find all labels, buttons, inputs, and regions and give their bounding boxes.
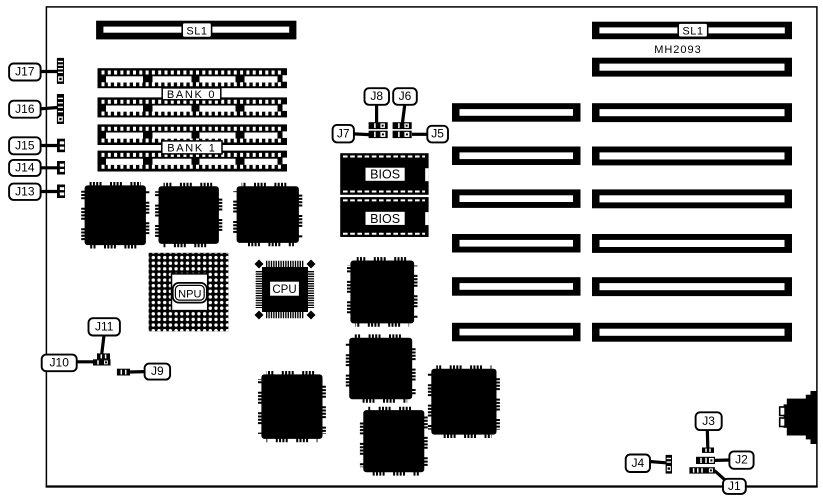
svg-text:J17: J17 — [15, 65, 35, 79]
svg-text:BANK 1: BANK 1 — [167, 143, 216, 155]
svg-text:J2: J2 — [735, 453, 748, 467]
svg-text:CPU: CPU — [272, 284, 296, 296]
svg-text:MH2093: MH2093 — [654, 44, 702, 56]
svg-text:J8: J8 — [370, 89, 383, 103]
svg-text:BIOS: BIOS — [370, 168, 400, 182]
svg-text:J7: J7 — [337, 126, 350, 140]
svg-text:BIOS: BIOS — [370, 212, 400, 226]
svg-text:J4: J4 — [632, 456, 645, 470]
svg-text:NPU: NPU — [178, 289, 201, 301]
svg-text:J13: J13 — [15, 184, 35, 198]
svg-text:SL1: SL1 — [186, 26, 207, 38]
svg-text:J14: J14 — [15, 161, 35, 175]
svg-text:J6: J6 — [399, 89, 412, 103]
svg-text:J9: J9 — [151, 364, 164, 378]
svg-text:J3: J3 — [702, 414, 715, 428]
svg-text:J16: J16 — [15, 102, 35, 116]
svg-text:J10: J10 — [50, 356, 70, 370]
svg-text:SL1: SL1 — [682, 26, 703, 38]
svg-text:J15: J15 — [15, 138, 35, 152]
svg-text:BANK 0: BANK 0 — [167, 89, 216, 101]
svg-text:J11: J11 — [95, 319, 114, 333]
svg-text:J5: J5 — [431, 127, 444, 141]
svg-text:J1: J1 — [728, 479, 741, 493]
